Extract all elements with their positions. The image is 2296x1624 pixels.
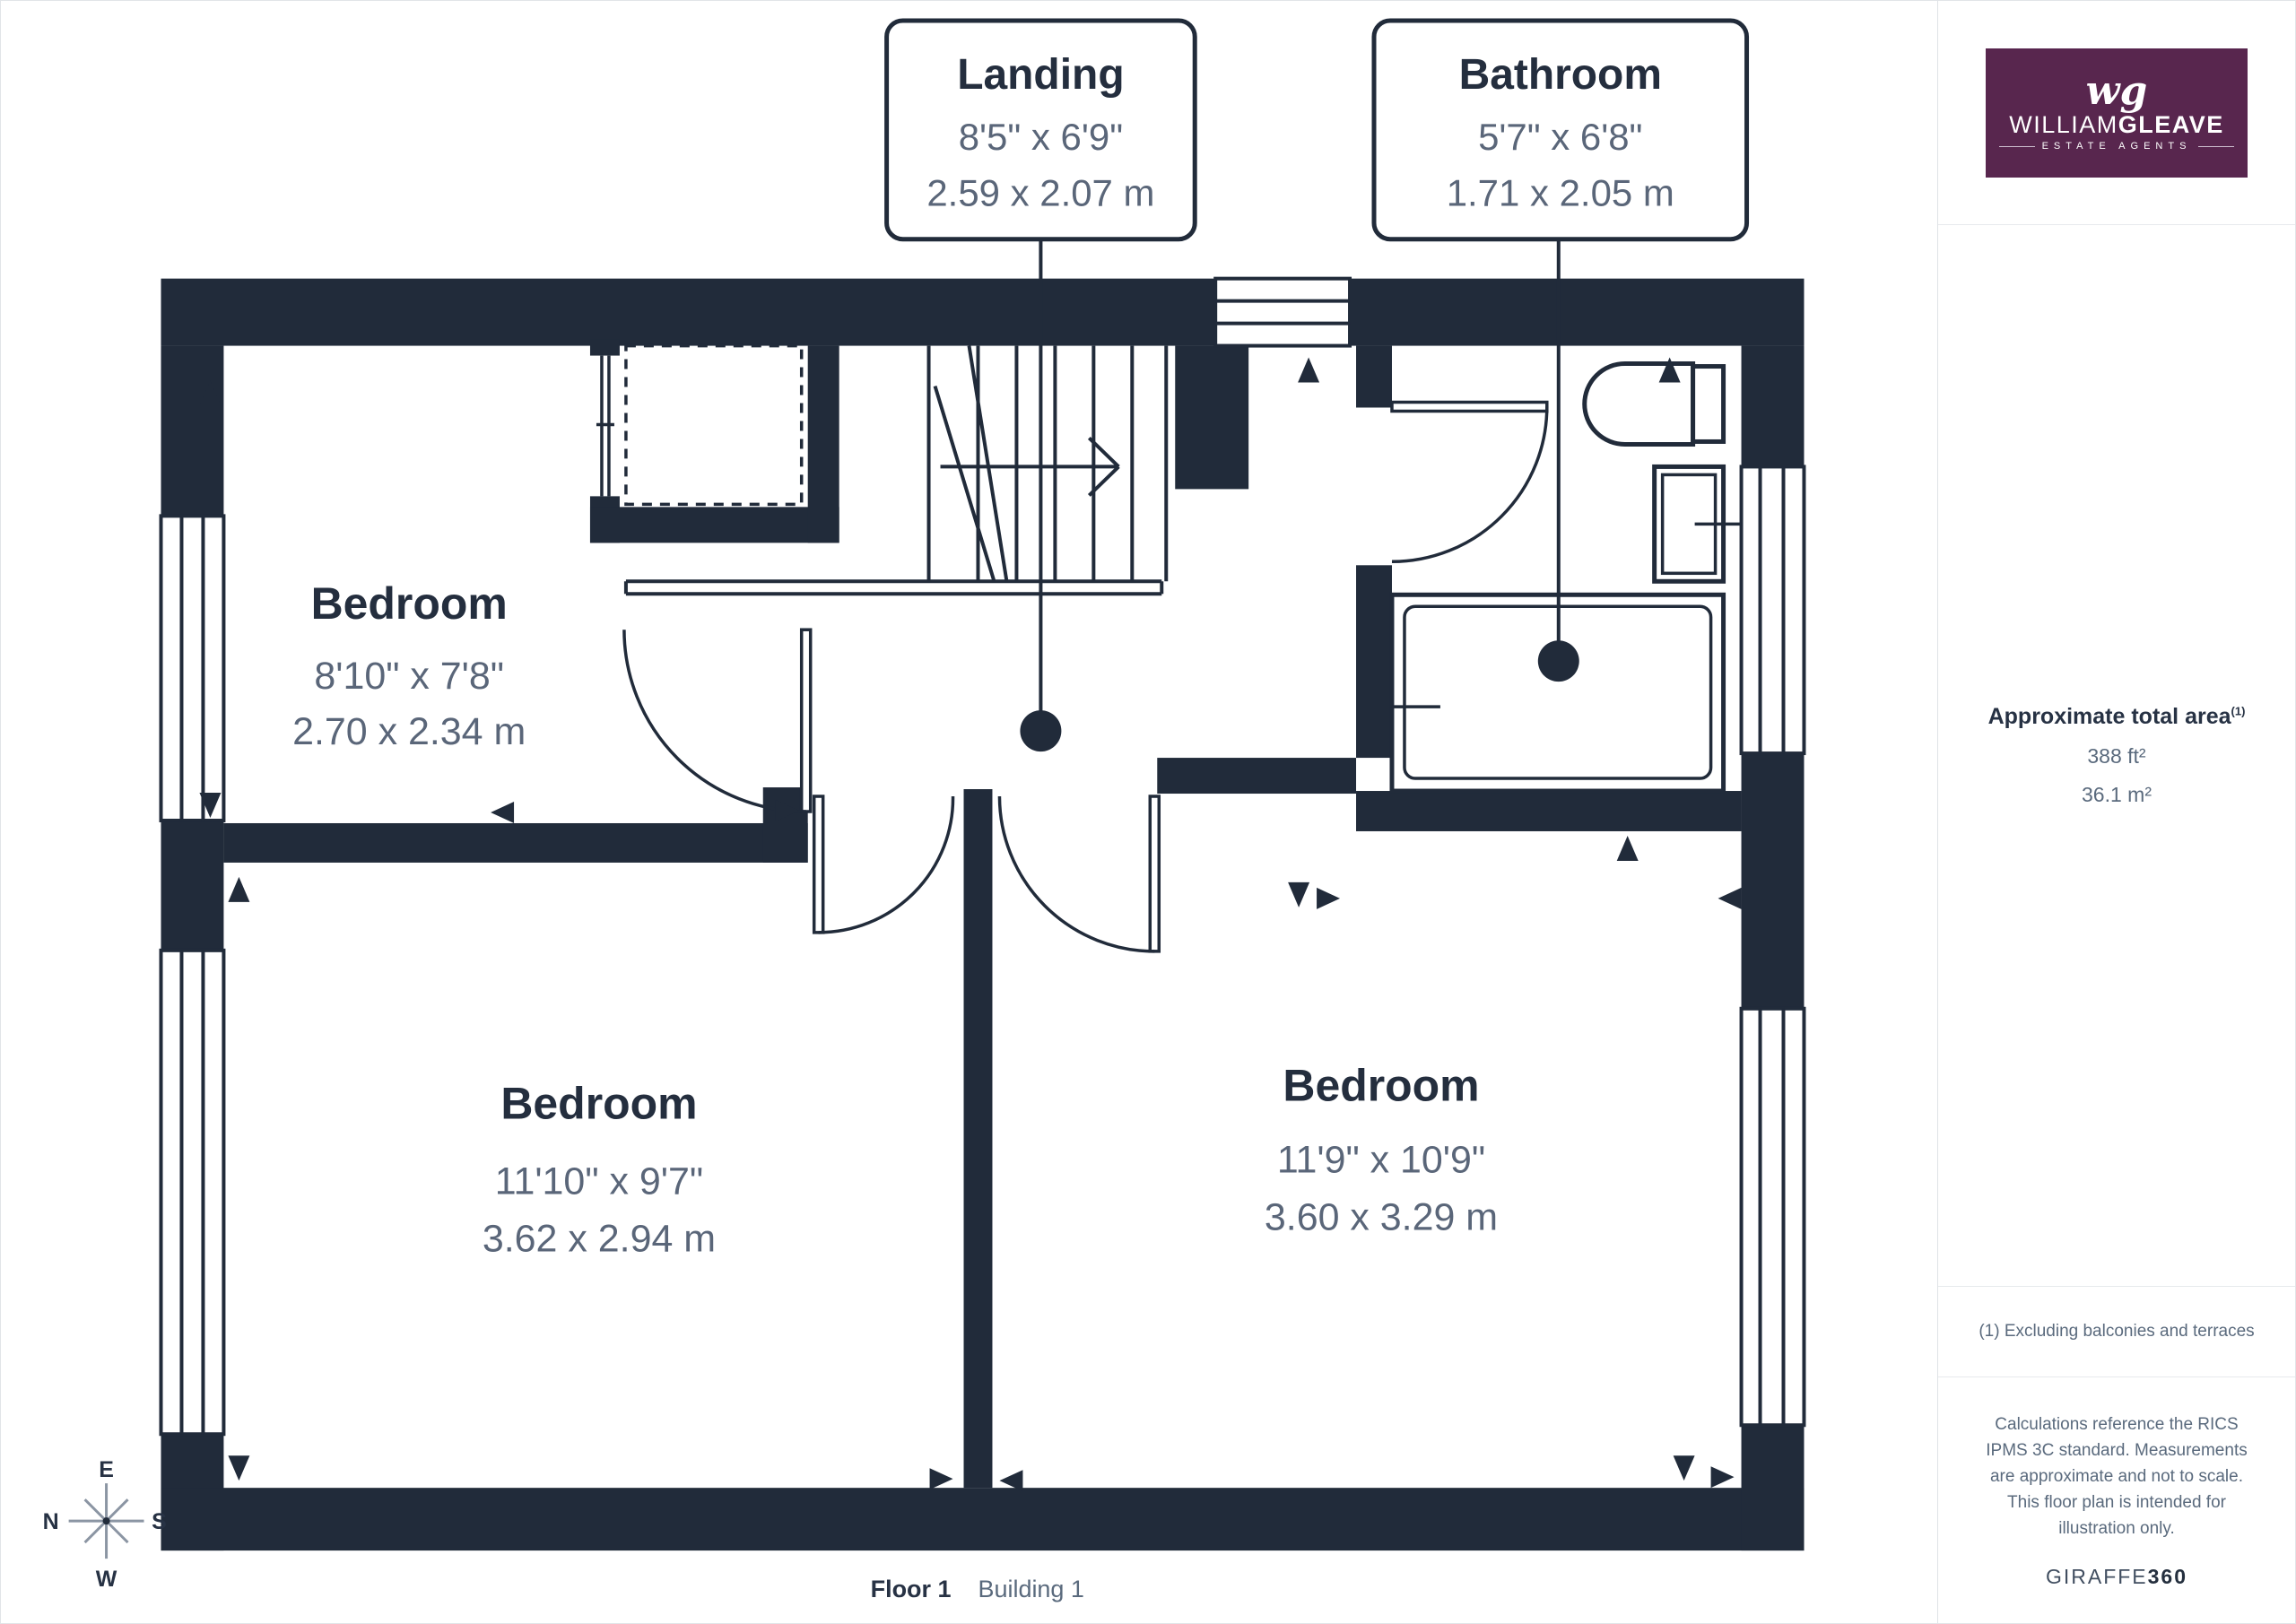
door-bathroom [1392,403,1547,562]
callout-bathroom: Bathroom 5'7" x 6'8" 1.71 x 2.05 m [1374,21,1747,239]
room-imperial: 8'10" x 7'8" [314,655,504,698]
door-bedroom-bottom-right [999,796,1159,951]
agency-tagline: ESTATE AGENTS [1999,141,2235,152]
room-title: Bedroom [1283,1061,1479,1111]
agency-name-light: WILLIAM [2009,111,2118,138]
compass-label-bottom: W [96,1567,117,1592]
room-metric: 2.70 x 2.34 m [292,710,526,753]
giraffe360-brand-light: GIRAFFE [2046,1565,2148,1588]
logo-section: wg WILLIAMGLEAVE ESTATE AGENTS [1938,1,2295,225]
compass-label-left: N [43,1509,59,1534]
closet [596,346,802,505]
total-area-heading-text: Approximate total area [1988,704,2231,729]
total-area-section: Approximate total area(1) 388 ft² 36.1 m… [1938,225,2295,1286]
window-right-lower [1742,1009,1805,1425]
window-left-lower [161,951,223,1434]
callout-landing: Landing 8'5" x 6'9" 2.59 x 2.07 m [887,21,1196,239]
floorplan-drawing: Landing 8'5" x 6'9" 2.59 x 2.07 m Bathro… [1,1,1937,1623]
agency-monogram-icon: wg [2086,74,2148,109]
giraffe360-brand-bold: 360 [2148,1565,2187,1588]
compass-label-top: E [99,1457,114,1482]
stairs-banister [626,581,1161,594]
window-left-upper [161,516,223,821]
tagline-rule-right [2198,146,2234,147]
room-title: Bedroom [500,1079,697,1129]
total-area-metric: 36.1 m² [2082,783,2152,807]
info-sidebar: wg WILLIAMGLEAVE ESTATE AGENTS Approxima… [1937,1,2295,1623]
door-bedroom-bottom-left [814,796,953,933]
room-title: Bedroom [311,578,508,629]
room-imperial: 11'10" x 9'7" [495,1160,703,1203]
callout-landing-imperial: 8'5" x 6'9" [959,116,1123,158]
callout-landing-title: Landing [957,51,1124,99]
room-metric: 3.60 x 3.29 m [1265,1195,1498,1238]
room-imperial: 11'9" x 10'9" [1277,1139,1485,1182]
agency-name: WILLIAMGLEAVE [2009,111,2224,138]
tagline-rule-left [1999,146,2035,147]
room-metric: 3.62 x 2.94 m [483,1217,716,1260]
window-top [1215,279,1350,346]
disclaimer-section: Calculations reference the RICS IPMS 3C … [1938,1377,2295,1623]
callout-bathroom-title: Bathroom [1459,51,1662,99]
callout-landing-metric: 2.59 x 2.07 m [926,172,1154,214]
giraffe360-brand: GIRAFFE360 [1938,1565,2295,1589]
staircase [626,346,1166,595]
total-area-imperial: 388 ft² [2087,744,2145,769]
floor-label: Floor 1 [871,1576,952,1602]
floor-caption: Floor 1 Building 1 [871,1576,1084,1602]
door-bedroom-top-left [624,630,811,812]
agency-name-bold: GLEAVE [2118,111,2224,138]
footnote-section: (1) Excluding balconies and terraces [1938,1286,2295,1377]
floorplan-page: Landing 8'5" x 6'9" 2.59 x 2.07 m Bathro… [0,0,2296,1624]
agency-logo: wg WILLIAMGLEAVE ESTATE AGENTS [1986,48,2248,178]
room-label-bedroom-bottom-left: Bedroom 11'10" x 9'7" 3.62 x 2.94 m [483,1079,716,1261]
window-right-upper [1742,466,1805,753]
room-label-bedroom-top-left: Bedroom 8'10" x 7'8" 2.70 x 2.34 m [292,578,526,753]
total-area-heading: Approximate total area(1) [1988,704,2246,730]
floorplan-canvas: Landing 8'5" x 6'9" 2.59 x 2.07 m Bathro… [1,1,1937,1623]
room-label-bedroom-bottom-right: Bedroom 11'9" x 10'9" 3.60 x 3.29 m [1265,1061,1498,1239]
building-label: Building 1 [978,1576,1083,1602]
compass-label-right: S [152,1509,167,1534]
compass-icon: E W N S [43,1457,167,1592]
footnote-text: (1) Excluding balconies and terraces [1979,1322,2254,1342]
callout-bathroom-metric: 1.71 x 2.05 m [1447,172,1674,214]
disclaimer-text: Calculations reference the RICS IPMS 3C … [1974,1411,2259,1541]
callout-bathroom-imperial: 5'7" x 6'8" [1478,116,1642,158]
footnote-marker: (1) [2231,705,2246,718]
toilet-icon [1585,364,1724,445]
agency-tagline-text: ESTATE AGENTS [2042,141,2192,152]
sink-icon [1655,466,1742,581]
